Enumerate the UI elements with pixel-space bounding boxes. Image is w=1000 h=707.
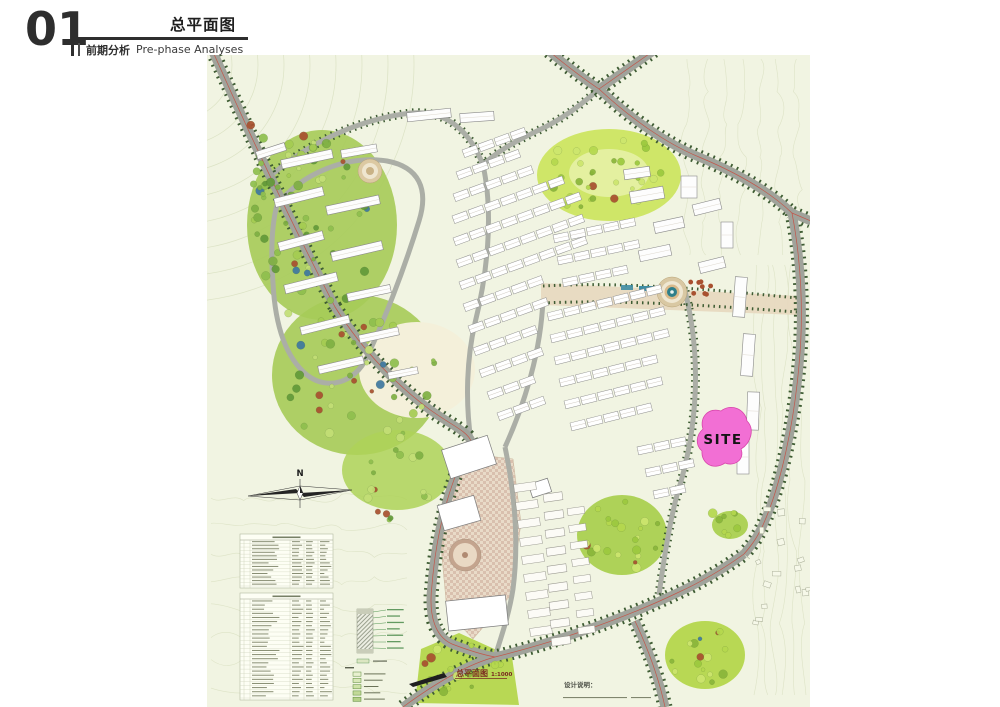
site-plan-svg: SITE N — [207, 55, 810, 707]
header-title-block: 总平面图 前期分析 Pre-phase Analyses — [78, 13, 248, 58]
section-name-cn: 前期分析 — [86, 42, 130, 58]
header-divider-bar — [71, 15, 74, 56]
north-label: N — [296, 469, 303, 479]
page-title: 总平面图 — [78, 13, 248, 35]
site-plan-map: SITE N — [207, 55, 810, 707]
design-notes-line — [563, 697, 627, 698]
subtitle-bar — [78, 43, 80, 56]
page: 01 总平面图 前期分析 Pre-phase Analyses — [0, 0, 1000, 707]
plan-caption: 总平面图 — [456, 668, 488, 678]
plan-scale: 1:1000 — [491, 672, 513, 678]
site-label: SITE — [703, 432, 742, 448]
header-underline — [78, 37, 248, 40]
design-notes-title: 设计说明： — [564, 680, 597, 689]
indicator-tables — [240, 534, 333, 700]
